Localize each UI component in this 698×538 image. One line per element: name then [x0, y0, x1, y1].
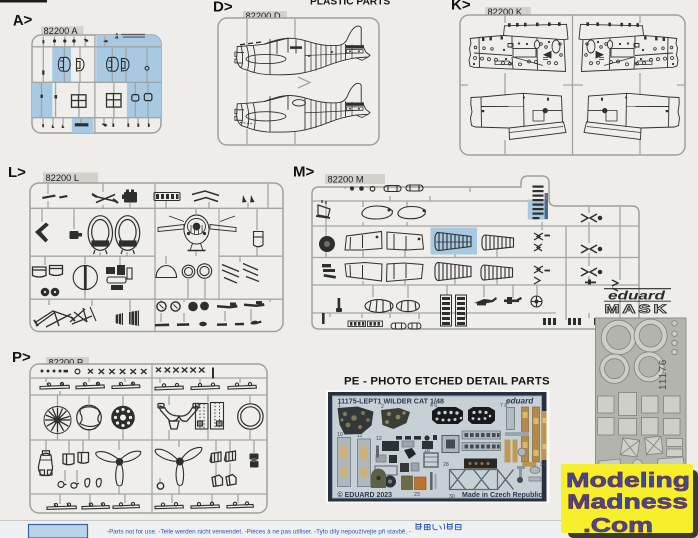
svg-text:34: 34 — [540, 462, 546, 468]
svg-text:L>: L> — [8, 164, 26, 181]
svg-text:4 6: 4 6 — [430, 403, 437, 409]
svg-text:PE - PHOTO ETCHED DETAIL PARTS: PE - PHOTO ETCHED DETAIL PARTS — [344, 376, 550, 388]
svg-text:eduard: eduard — [506, 396, 534, 405]
svg-text:11: 11 — [357, 433, 362, 439]
svg-text:23: 23 — [414, 492, 420, 498]
svg-text:82200 M: 82200 M — [328, 175, 364, 185]
svg-text:82200 L: 82200 L — [46, 173, 80, 183]
svg-text:© EDUARD 2023: © EDUARD 2023 — [338, 491, 393, 499]
svg-text:A>: A> — [12, 11, 33, 29]
svg-text:11176: 11176 — [658, 359, 669, 390]
svg-text:11175-LEPT1 WILDER CAT 1/48: 11175-LEPT1 WILDER CAT 1/48 — [338, 397, 445, 406]
svg-text:2: 2 — [381, 404, 384, 410]
svg-text:PLASTIC PARTS: PLASTIC PARTS — [310, 0, 390, 7]
svg-text:12: 12 — [376, 436, 382, 442]
svg-text:7 8: 7 8 — [500, 403, 507, 409]
svg-text:-Parts not for use. -Teile wer: -Parts not for use. -Teile werden nicht … — [107, 529, 411, 536]
svg-text:M>: M> — [293, 164, 314, 181]
svg-text:28: 28 — [443, 462, 449, 468]
svg-text:1: 1 — [338, 403, 341, 409]
svg-text:18: 18 — [424, 448, 430, 454]
svg-text:P>: P> — [12, 349, 31, 366]
svg-text:MASK: MASK — [605, 302, 670, 316]
svg-text:Madness: Madness — [567, 491, 688, 514]
svg-text:eduard: eduard — [608, 290, 666, 303]
svg-text:Modeling: Modeling — [566, 469, 690, 492]
svg-text:D>: D> — [213, 0, 233, 16]
svg-text:10: 10 — [337, 432, 343, 438]
svg-text:.Com: .Com — [583, 514, 653, 537]
svg-text:Made in Czech Republic: Made in Czech Republic — [462, 492, 542, 499]
svg-text:30: 30 — [449, 494, 455, 500]
svg-text:K>: K> — [451, 0, 471, 14]
